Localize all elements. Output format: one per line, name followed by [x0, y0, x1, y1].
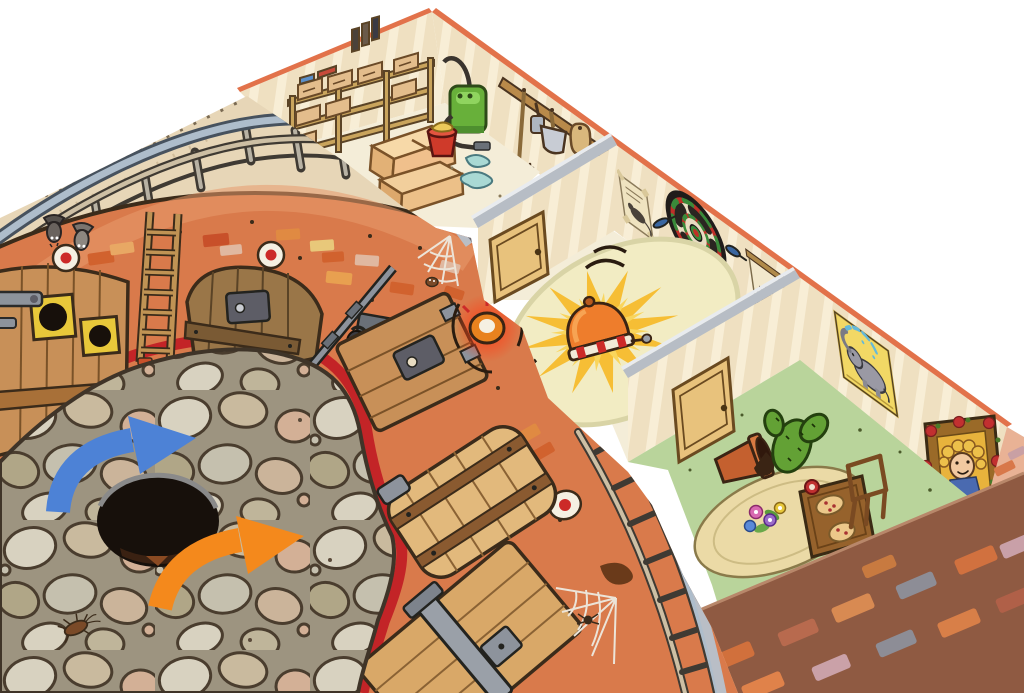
peephole	[39, 303, 67, 331]
scene	[0, 0, 1024, 693]
shovel-blade	[541, 126, 566, 153]
shovel-handle	[551, 112, 553, 126]
vacuum-nozzle	[474, 142, 490, 150]
spider	[426, 278, 438, 287]
door-handle	[535, 249, 541, 255]
peephole	[89, 325, 111, 347]
shelf-books	[352, 28, 359, 52]
bucket	[428, 122, 456, 156]
bell-handle	[583, 296, 595, 307]
game-box-photo	[0, 0, 1024, 693]
door-handle	[721, 405, 727, 411]
door-metal-plate	[226, 291, 270, 324]
